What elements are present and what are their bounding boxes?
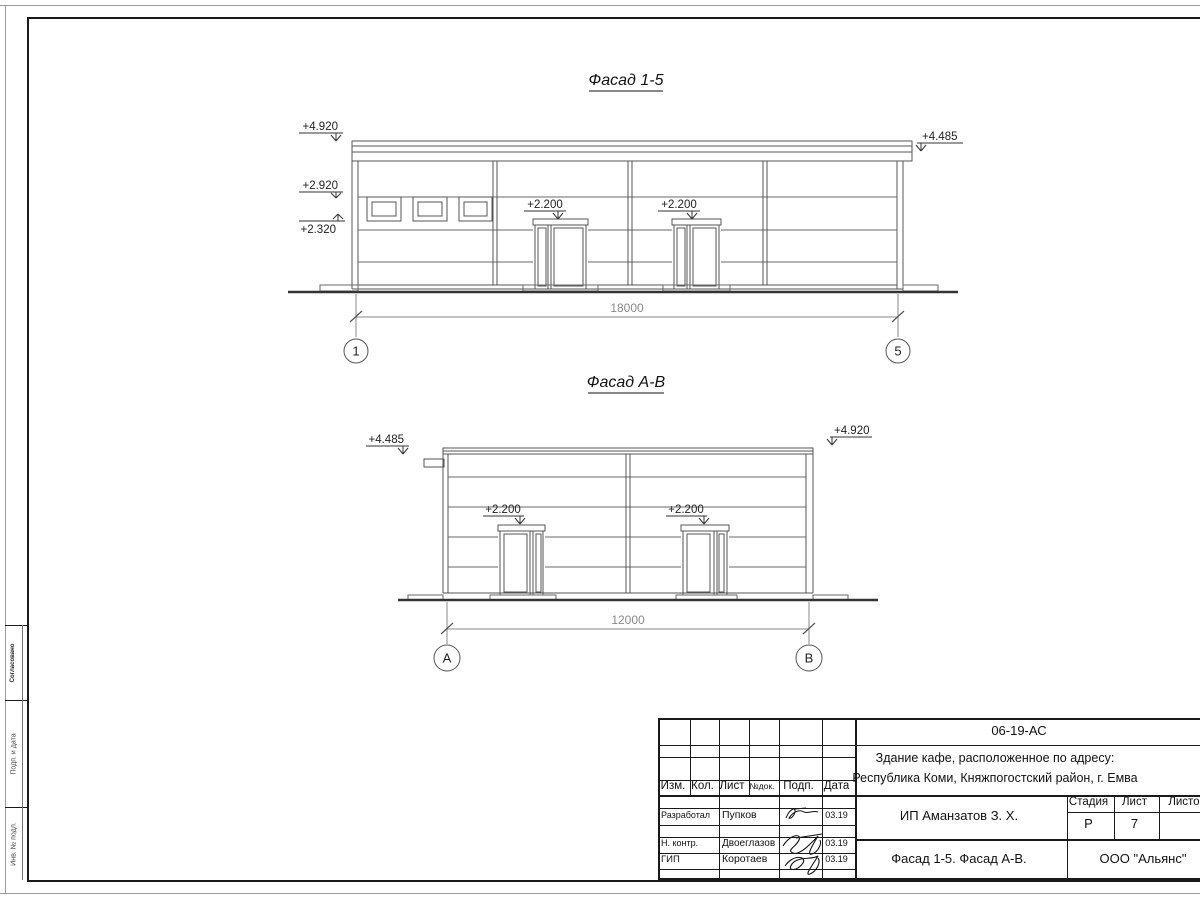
tb-row-role-gip: ГИП (661, 851, 717, 867)
tb-row-date-gip: 03.19 (820, 851, 853, 867)
facade-ab-door-1 (498, 525, 545, 595)
tb-object-line1: Здание кафе, расположенное по адресу: (876, 749, 1115, 768)
tb-sheets-label: Листов (1157, 793, 1200, 810)
elevation-mark-4485: +4.485 (922, 131, 958, 143)
facade-15-title: Фасад 1-5 (589, 72, 664, 89)
elevation-mark-ab-4485: +4.485 (369, 434, 405, 446)
tb-col-doc-no: №док. (747, 778, 777, 793)
elevation-mark-2920: +2.920 (303, 180, 339, 192)
dimension-label-12000: 12000 (611, 613, 645, 627)
tb-sheet-value: 7 (1112, 810, 1157, 837)
axis-label-a: А (443, 651, 452, 666)
tb-stage-label: Стадия (1065, 793, 1112, 810)
tb-doc-code: 06-19-АС (853, 718, 1185, 743)
tb-object-address: Здание кафе, расположенное по адресу: Ре… (855, 744, 1135, 793)
tb-sheet-label: Лист (1112, 793, 1157, 810)
facade-15-door-2 (672, 219, 721, 289)
elevation-mark-4920: +4.920 (303, 121, 339, 133)
facade-15-base (320, 285, 938, 291)
tb-content-title: Фасад 1-5. Фасад А-В. (853, 837, 1065, 880)
tb-row-date-developer: 03.19 (820, 806, 853, 823)
facade-15-axis-bubbles (344, 339, 910, 363)
door-elevation-mark-ab-2: +2.200 (668, 504, 704, 516)
tb-row-name-ncontr: Двоеглазов (722, 835, 777, 851)
tb-row-role-ncontr: Н. контр. (661, 835, 717, 851)
facade-ab-canopy-stub (424, 459, 444, 467)
facade-15-parapet (352, 141, 912, 161)
tb-row-role-developer: Разработал (661, 806, 717, 823)
tb-col-izm: Изм. (658, 778, 688, 793)
facade-15-door-1 (533, 219, 588, 289)
tb-client: ИП Аманзатов З. Х. (853, 793, 1065, 837)
tb-col-list: Лист (717, 778, 747, 793)
tb-stage-value: Р (1065, 810, 1112, 837)
door-elevation-mark-1: +2.200 (527, 199, 563, 211)
drawing-sheet: Согласовано Подп. и дата Инв. № подл. (0, 0, 1200, 900)
facade-15-panel-joints (493, 161, 767, 285)
tb-object-line2: Республика Коми, Княжпогостский район, г… (852, 769, 1137, 788)
facade-ab-drawing (366, 437, 878, 671)
tb-col-date: Дата (820, 778, 853, 793)
axis-label-1: 1 (352, 344, 359, 359)
axis-label-b: В (805, 651, 814, 666)
tb-organization: ООО "Альянс" (1065, 837, 1200, 880)
facade-ab-elevation-arrows (366, 437, 872, 524)
door-elevation-mark-2: +2.200 (661, 199, 697, 211)
tb-row-name-developer: Пупков (722, 806, 777, 823)
facade-15-windows (367, 197, 492, 221)
axis-label-5: 5 (894, 344, 901, 359)
facade-ab-siding-lines (448, 477, 806, 567)
dimension-label-18000: 18000 (610, 301, 644, 315)
facade-15-drawing (288, 133, 963, 363)
tb-col-sign: Подп. (777, 778, 820, 793)
elevation-mark-2320: +2.320 (301, 224, 337, 236)
facade-ab-panel-joint (626, 454, 630, 593)
tb-row-date-ncontr: 03.19 (820, 835, 853, 851)
elevation-mark-ab-4920: +4.920 (834, 425, 870, 437)
door-elevation-mark-ab-1: +2.200 (485, 504, 521, 516)
tb-row-name-gip: Коротаев (722, 851, 777, 867)
facade-ab-door-2 (681, 525, 729, 595)
tb-col-kol: Кол. (688, 778, 717, 793)
facade-ab-axis-bubbles (434, 645, 822, 671)
facade-ab-parapet (443, 448, 813, 454)
facade-ab-walls (443, 454, 813, 593)
facade-ab-title: Фасад А-В (587, 374, 666, 391)
